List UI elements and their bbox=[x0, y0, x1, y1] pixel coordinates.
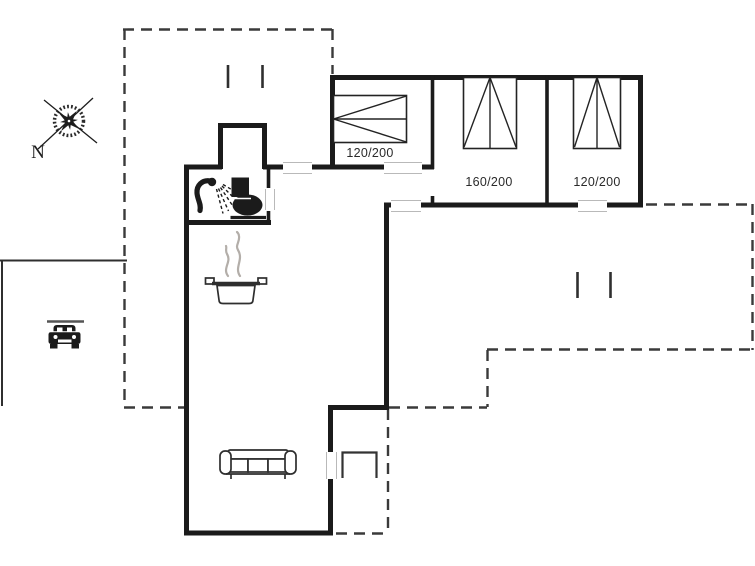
bed-size-label-1: 120/200 bbox=[346, 146, 393, 160]
bed-symbol-3 bbox=[574, 78, 621, 149]
door-opening-bedroom-3-terrace bbox=[578, 200, 607, 212]
car-icon bbox=[49, 325, 81, 349]
floor-plan: 120/200 160/200 120/200 N bbox=[0, 0, 755, 566]
sofa-icon bbox=[220, 450, 296, 479]
bed-symbol-1 bbox=[334, 96, 407, 143]
bed-size-label-3: 120/200 bbox=[573, 175, 620, 189]
north-label: N bbox=[31, 142, 45, 164]
door-opening-bathroom bbox=[265, 189, 275, 210]
entry-step bbox=[343, 453, 377, 479]
toilet-icon bbox=[231, 178, 267, 218]
bed-symbol-2 bbox=[464, 78, 517, 149]
porch-dashed-outline bbox=[336, 409, 388, 534]
window-opening-kitchen bbox=[283, 162, 312, 174]
compass-rose-icon bbox=[38, 98, 97, 149]
door-opening-bedroom-1 bbox=[384, 162, 422, 174]
bed-size-label-2: 160/200 bbox=[465, 175, 512, 189]
cooking-pot-icon bbox=[206, 278, 267, 304]
terrace-dashed-outline-right bbox=[389, 204, 753, 408]
door-opening-entrance bbox=[326, 452, 337, 479]
terrace-tick-marks bbox=[228, 65, 611, 298]
floor-plan-drawing bbox=[0, 0, 755, 566]
steam-icon bbox=[226, 232, 240, 276]
door-opening-hall-terrace bbox=[391, 200, 421, 212]
